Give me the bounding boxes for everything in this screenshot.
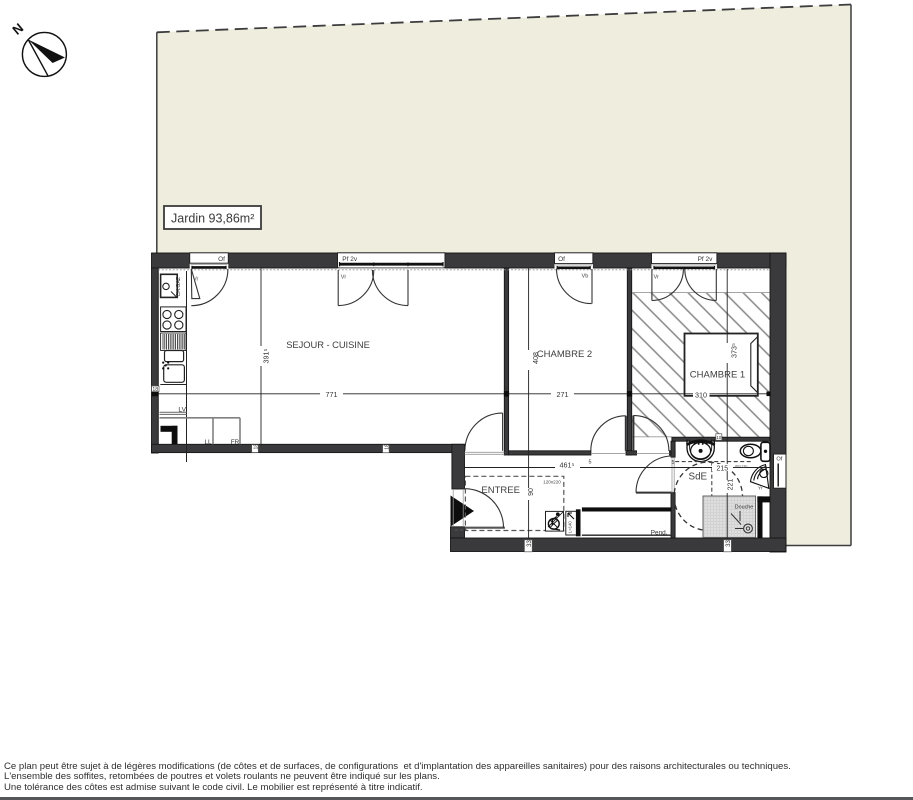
svg-text:10: 10 bbox=[716, 435, 722, 440]
svg-text:CH.GAZ: CH.GAZ bbox=[176, 277, 182, 297]
svg-text:5: 5 bbox=[629, 387, 632, 393]
svg-text:90: 90 bbox=[528, 488, 535, 496]
svg-text:18: 18 bbox=[385, 444, 391, 450]
svg-text:33: 33 bbox=[527, 540, 533, 547]
svg-text:18: 18 bbox=[152, 387, 158, 393]
svg-text:5: 5 bbox=[589, 460, 592, 466]
svg-text:391⁵: 391⁵ bbox=[262, 349, 271, 364]
svg-text:221: 221 bbox=[727, 479, 734, 491]
svg-text:271: 271 bbox=[557, 390, 569, 399]
svg-text:SEJOUR - CUISINE: SEJOUR - CUISINE bbox=[286, 339, 370, 350]
svg-text:Pf 2v: Pf 2v bbox=[342, 256, 358, 263]
svg-text:Vr: Vr bbox=[654, 275, 660, 281]
svg-text:Vr: Vr bbox=[193, 277, 199, 283]
svg-text:310: 310 bbox=[695, 390, 707, 399]
svg-text:CHAMBRE 2: CHAMBRE 2 bbox=[537, 349, 592, 360]
svg-text:373⁵: 373⁵ bbox=[729, 343, 738, 358]
svg-text:Of: Of bbox=[776, 457, 782, 463]
svg-text:L=140: L=140 bbox=[568, 521, 573, 533]
svg-text:33: 33 bbox=[726, 540, 732, 547]
svg-text:Jardin 93,86m²: Jardin 93,86m² bbox=[171, 212, 254, 226]
svg-text:80x130: 80x130 bbox=[735, 465, 747, 469]
svg-text:LL: LL bbox=[204, 439, 212, 446]
svg-text:CHAMBRE 1: CHAMBRE 1 bbox=[690, 370, 745, 381]
svg-text:SdE: SdE bbox=[689, 472, 708, 483]
svg-text:Vb: Vb bbox=[582, 274, 589, 280]
svg-text:LV: LV bbox=[178, 407, 186, 414]
svg-text:Of: Of bbox=[218, 256, 225, 263]
svg-text:18: 18 bbox=[254, 444, 260, 450]
svg-text:Vr: Vr bbox=[341, 275, 347, 281]
svg-text:Douche: Douche bbox=[735, 505, 754, 511]
svg-text:FR: FR bbox=[231, 439, 240, 446]
svg-text:Of: Of bbox=[558, 256, 565, 263]
svg-text:461⁵: 461⁵ bbox=[560, 460, 575, 469]
svg-text:215: 215 bbox=[716, 466, 728, 473]
svg-text:5: 5 bbox=[505, 387, 508, 393]
svg-text:5: 5 bbox=[672, 460, 675, 466]
svg-text:Pend.: Pend. bbox=[651, 529, 668, 536]
svg-text:Pf 2v: Pf 2v bbox=[698, 256, 714, 263]
svg-text:120x220: 120x220 bbox=[543, 480, 561, 485]
svg-text:771: 771 bbox=[326, 390, 338, 399]
svg-text:ENTREE: ENTREE bbox=[481, 485, 520, 496]
svg-text:Yr: Yr bbox=[758, 486, 763, 491]
